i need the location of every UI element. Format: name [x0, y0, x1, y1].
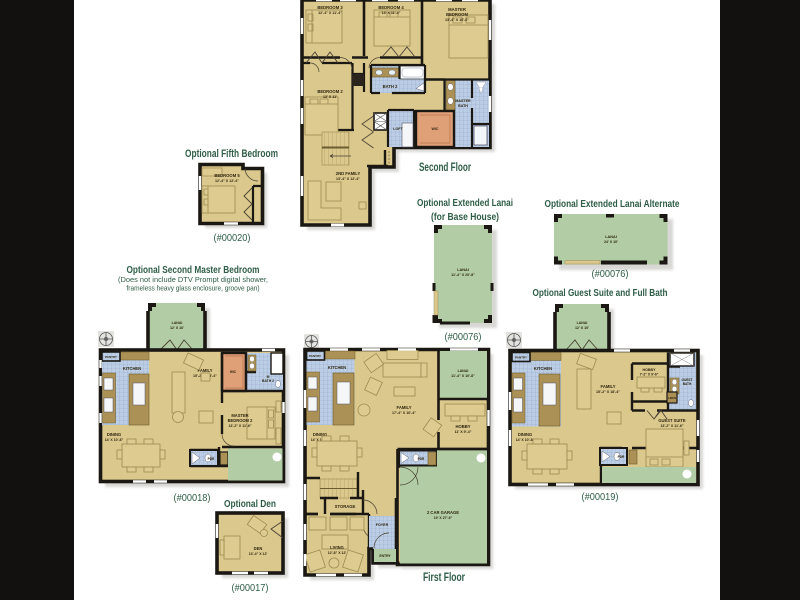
svg-text:HOBBY: HOBBY — [643, 368, 657, 372]
svg-text:Second Floor: Second Floor — [419, 162, 471, 174]
svg-text:(#00017): (#00017) — [232, 582, 269, 594]
svg-text:(#00018): (#00018) — [174, 492, 211, 504]
svg-text:LINEN: LINEN — [668, 396, 676, 400]
svg-text:2 CAR GARAGE: 2 CAR GARAGE — [427, 510, 459, 515]
svg-text:FAMILY: FAMILY — [397, 405, 412, 410]
svg-text:11' X 9'-4": 11' X 9'-4" — [455, 430, 472, 434]
svg-text:MASTER: MASTER — [455, 99, 471, 103]
svg-text:PANTRY: PANTRY — [105, 355, 117, 359]
svg-text:12'-4" X 12'-4": 12'-4" X 12'-4" — [215, 179, 239, 183]
svg-text:(#00019): (#00019) — [582, 491, 619, 503]
svg-text:(#00076): (#00076) — [592, 268, 629, 280]
svg-text:15'-2" X 18'-4": 15'-2" X 18'-4" — [596, 390, 620, 394]
svg-text:KITCHEN: KITCHEN — [123, 366, 141, 371]
svg-text:Optional Guest Suite and Full: Optional Guest Suite and Full Bath — [533, 287, 668, 299]
svg-text:LANAI: LANAI — [458, 369, 469, 373]
svg-text:11'-4" X 10'-8": 11'-4" X 10'-8" — [451, 374, 475, 378]
svg-text:LOFT: LOFT — [393, 127, 403, 131]
svg-text:24' X 10': 24' X 10' — [604, 240, 618, 244]
svg-text:13'-2" X 11'-6": 13'-2" X 11'-6" — [660, 424, 683, 428]
svg-text:DINING: DINING — [518, 432, 532, 437]
svg-text:BEDROOM: BEDROOM — [446, 12, 468, 17]
svg-text:BEDROOM 2: BEDROOM 2 — [228, 418, 254, 423]
svg-text:2ND FAMILY: 2ND FAMILY — [336, 171, 361, 176]
svg-text:12'-8" X 12': 12'-8" X 12' — [328, 551, 347, 555]
svg-text:ENTRY: ENTRY — [379, 554, 391, 558]
svg-text:17'-4" X 16'-4": 17'-4" X 16'-4" — [392, 411, 416, 415]
svg-text:FAMILY: FAMILY — [601, 384, 616, 389]
svg-text:Optional Den: Optional Den — [224, 498, 276, 510]
svg-text:KITCHEN: KITCHEN — [534, 366, 552, 371]
svg-text:BATH: BATH — [683, 382, 692, 386]
svg-text:14' X 10'-8": 14' X 10'-8" — [105, 438, 124, 442]
svg-text:BEDROOM 3: BEDROOM 3 — [317, 5, 343, 10]
svg-text:13'-4" X 16'-6": 13'-4" X 16'-6" — [445, 18, 469, 22]
svg-text:12' X 10': 12' X 10' — [575, 326, 589, 330]
svg-text:LIVING: LIVING — [330, 545, 344, 550]
svg-text:BATH 2: BATH 2 — [383, 84, 398, 89]
svg-text:BEDROOM 2: BEDROOM 2 — [317, 89, 343, 94]
svg-text:12' X 16': 12' X 16' — [170, 326, 184, 330]
svg-text:FOYER: FOYER — [376, 523, 389, 527]
svg-text:WIC: WIC — [230, 370, 237, 374]
svg-text:14' X 10'-8": 14' X 10'-8" — [516, 438, 535, 442]
svg-text:GUEST SUITE: GUEST SUITE — [658, 418, 686, 423]
svg-text:First Floor: First Floor — [423, 572, 465, 584]
svg-text:DINING: DINING — [107, 432, 121, 437]
svg-text:DEN: DEN — [254, 546, 263, 551]
svg-text:13'-4" X 12': 13'-4" X 12' — [249, 552, 268, 556]
svg-text:Optional Fifth Bedroom: Optional Fifth Bedroom — [185, 148, 278, 160]
svg-text:PANTRY: PANTRY — [309, 354, 321, 358]
svg-text:PDR: PDR — [208, 457, 215, 461]
svg-text:KITCHEN: KITCHEN — [328, 365, 346, 370]
svg-text:Optional Extended Lanai: Optional Extended Lanai — [417, 197, 513, 209]
svg-text:LANAI: LANAI — [577, 321, 588, 325]
svg-text:BEDROOM 4: BEDROOM 4 — [378, 5, 404, 10]
svg-text:13'-4" X 12'-4": 13'-4" X 12'-4" — [336, 177, 360, 181]
svg-text:BEDROOM 5: BEDROOM 5 — [214, 173, 240, 178]
svg-text:PDR: PDR — [618, 455, 625, 459]
svg-text:Optional Extended Lanai Altern: Optional Extended Lanai Alternate — [545, 198, 680, 210]
svg-text:BATH: BATH — [458, 104, 468, 108]
svg-text:WIC: WIC — [432, 127, 439, 131]
svg-text:PDR: PDR — [418, 457, 425, 461]
svg-text:11'-4" X 20'-8": 11'-4" X 20'-8" — [451, 273, 475, 277]
svg-text:BATH 2: BATH 2 — [262, 379, 274, 383]
svg-text:7'-2" X 9'-6": 7'-2" X 9'-6" — [640, 373, 659, 377]
svg-text:13' X 11': 13' X 11' — [323, 95, 337, 99]
svg-text:frameless heavy glass enclosur: frameless heavy glass enclosure, groove … — [127, 284, 260, 293]
svg-text:(for Base House): (for Base House) — [431, 211, 499, 223]
svg-text:LANAI: LANAI — [172, 321, 183, 325]
svg-text:LANAI: LANAI — [605, 235, 617, 239]
svg-text:LANAI: LANAI — [457, 268, 469, 272]
svg-text:19' X 27'-6": 19' X 27'-6" — [434, 516, 453, 520]
svg-text:PANTRY: PANTRY — [515, 356, 527, 360]
svg-text:13' X 11'-4": 13' X 11'-4" — [382, 11, 401, 15]
svg-text:(#00020): (#00020) — [214, 232, 251, 244]
svg-text:HOBBY: HOBBY — [455, 424, 470, 429]
svg-text:13'-2" X 11'-6": 13'-2" X 11'-6" — [228, 424, 251, 428]
svg-text:12'-4" X 11'-4": 12'-4" X 11'-4" — [318, 11, 342, 15]
svg-text:STORAGE: STORAGE — [335, 504, 356, 509]
svg-text:(#00076): (#00076) — [445, 331, 482, 343]
